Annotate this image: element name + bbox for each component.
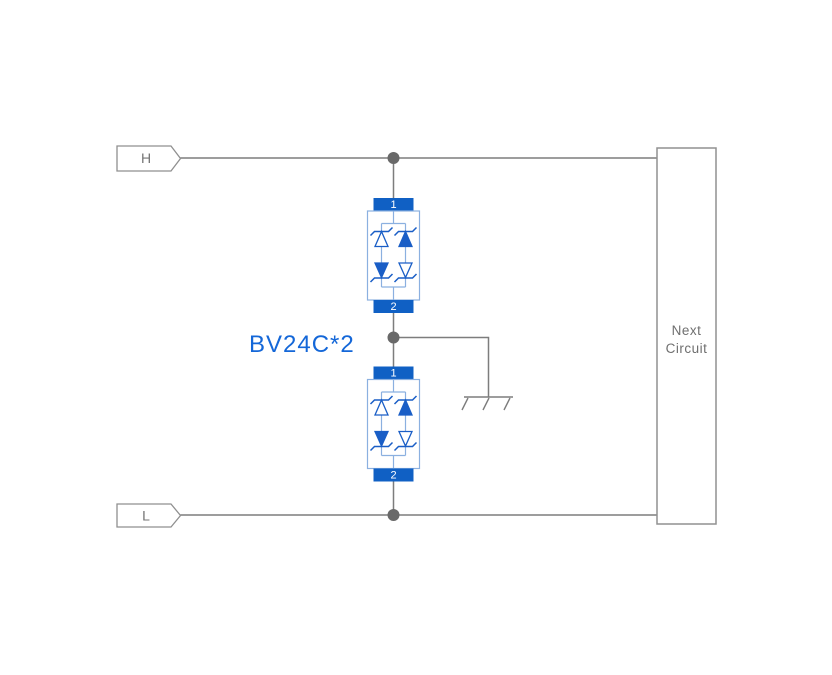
terminal-h-label: H bbox=[141, 150, 151, 166]
part-number-label: BV24C*2 bbox=[249, 331, 355, 358]
ground-icon bbox=[462, 397, 513, 410]
next-circuit-label-line2: Circuit bbox=[666, 341, 708, 356]
tvs2-pin-bottom-label: 2 bbox=[390, 470, 396, 482]
tvs-component-1: 1 2 bbox=[368, 198, 420, 313]
tvs-component-2: 1 2 bbox=[368, 367, 420, 482]
tvs1-pin-bottom-label: 2 bbox=[390, 301, 396, 313]
circuit-diagram: H L 1 2 1 2 BV24C*2 Next Circuit bbox=[0, 0, 832, 675]
junction-dot-icon bbox=[388, 332, 400, 344]
tvs-diode-array-icon bbox=[368, 198, 420, 313]
schematic-svg: H L 1 2 1 2 BV24C*2 Next Circuit bbox=[0, 0, 832, 675]
terminal-l: L bbox=[117, 504, 181, 527]
tvs1-pin-top-label: 1 bbox=[390, 199, 396, 211]
next-circuit-label-line1: Next bbox=[672, 323, 702, 338]
tvs-diode-array-icon bbox=[368, 367, 420, 482]
terminal-l-label: L bbox=[142, 508, 150, 524]
junction-dot-icon bbox=[388, 509, 400, 521]
junction-dot-icon bbox=[388, 152, 400, 164]
tvs2-pin-top-label: 1 bbox=[390, 368, 396, 380]
next-circuit-block: Next Circuit bbox=[657, 148, 716, 524]
terminal-h: H bbox=[117, 146, 181, 171]
